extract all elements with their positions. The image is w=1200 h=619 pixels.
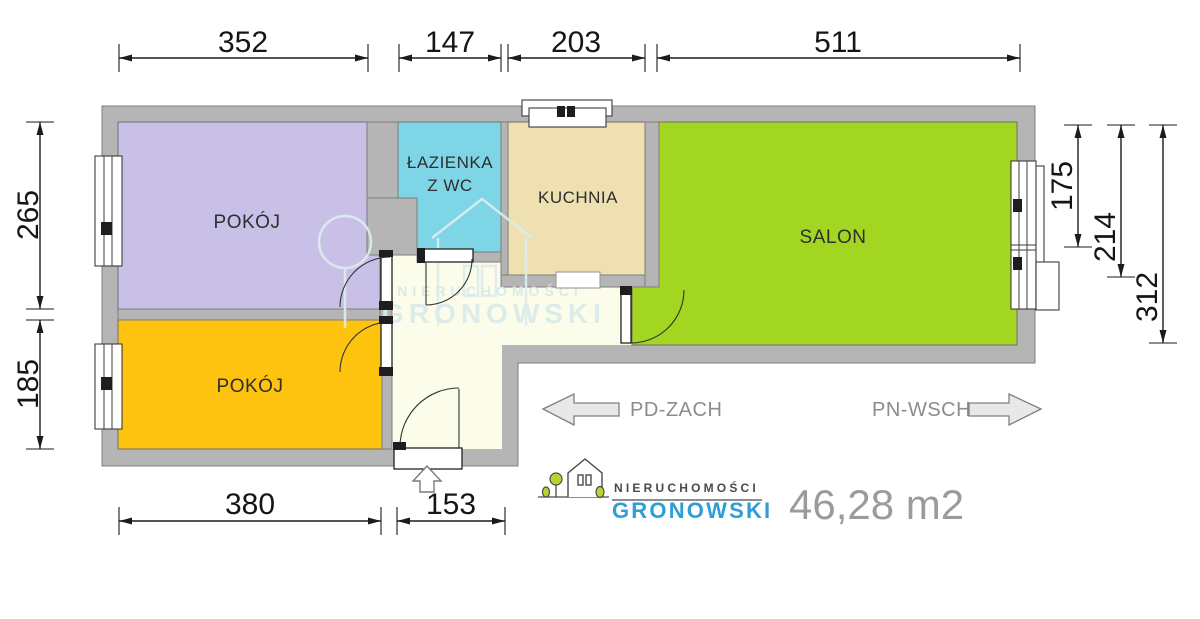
dimensions-bottom: 380 153 [119,488,505,535]
dim-bottom-153: 153 [426,488,476,521]
watermark-text-bottom: GRONOWSKI [382,298,606,329]
window-pokoj-2 [95,344,122,429]
window-handle-icon [1013,257,1022,270]
window-handle-icon [1013,199,1022,212]
compass-east-label: PN-WSCH [872,399,971,421]
floor-plan-canvas: NIERUCHOMOŚCI GRONOWSKI [0,0,1200,619]
dim-bottom-380: 380 [225,488,275,521]
dim-top-352: 352 [218,26,268,59]
floor-plan: NIERUCHOMOŚCI GRONOWSKI [95,100,1059,492]
dimensions-left: 265 185 [12,122,54,449]
dim-top-203: 203 [551,26,601,59]
label-lazienka-line1: ŁAZIENKA [407,153,493,172]
wall-lazienka-kuchnia [501,122,508,275]
logo-name-top: NIERUCHOMOŚCI [614,480,759,495]
balcony-sill-box [1036,262,1059,310]
dim-left-185: 185 [12,359,45,409]
east-arrow-icon [969,394,1041,425]
wall-between-rooms [118,309,392,320]
label-lazienka-line2: Z WC [427,176,472,195]
compass-west-label: PD-ZACH [630,399,722,421]
logo-bush-icon [543,487,550,497]
window-handle-icon [101,222,112,235]
dim-top-147: 147 [425,26,475,59]
label-salon: SALON [800,227,867,248]
window-handle-icon [557,106,565,117]
wall-stub-lazienka-right [473,252,501,262]
total-area-label: 46,28 m2 [789,481,964,528]
logo-name-bottom: GRONOWSKI [612,498,772,523]
dimensions-top: 352 147 203 511 [119,26,1020,72]
logo-tree-icon [550,473,562,485]
label-kuchnia: KUCHNIA [538,188,618,207]
watermark-text-top: NIERUCHOMOŚCI [397,282,583,299]
dim-left-265: 265 [12,190,45,240]
floor-plan-page: NIERUCHOMOŚCI GRONOWSKI [0,0,1200,619]
compass: PD-ZACH PN-WSCH [543,394,1041,425]
dimensions-right: 175 214 312 [1046,125,1177,343]
label-pokoj-1: POKÓJ [214,211,281,233]
logo-house-window [578,475,583,485]
window-handle-icon [567,106,575,117]
west-arrow-icon [543,394,619,425]
window-pokoj-1 [95,156,122,266]
wall-pokoj-lazienka-upper [367,122,398,198]
wall-pokoj2-right [382,374,392,449]
dim-right-312: 312 [1131,272,1164,322]
agency-logo: NIERUCHOMOŚCI GRONOWSKI [538,459,772,523]
logo-house-window [586,475,591,485]
wall-pokoj-lazienka-lower [367,198,417,255]
kitchen-pass-opening [556,272,600,288]
label-pokoj-2: POKÓJ [217,375,284,397]
wall-kuchnia-salon [645,122,659,287]
logo-bush-icon [596,487,604,498]
window-kuchnia-top [522,100,612,127]
dim-top-511: 511 [814,26,862,59]
dim-right-214: 214 [1089,212,1122,262]
dim-right-175: 175 [1046,161,1079,211]
window-handle-icon [101,377,112,390]
